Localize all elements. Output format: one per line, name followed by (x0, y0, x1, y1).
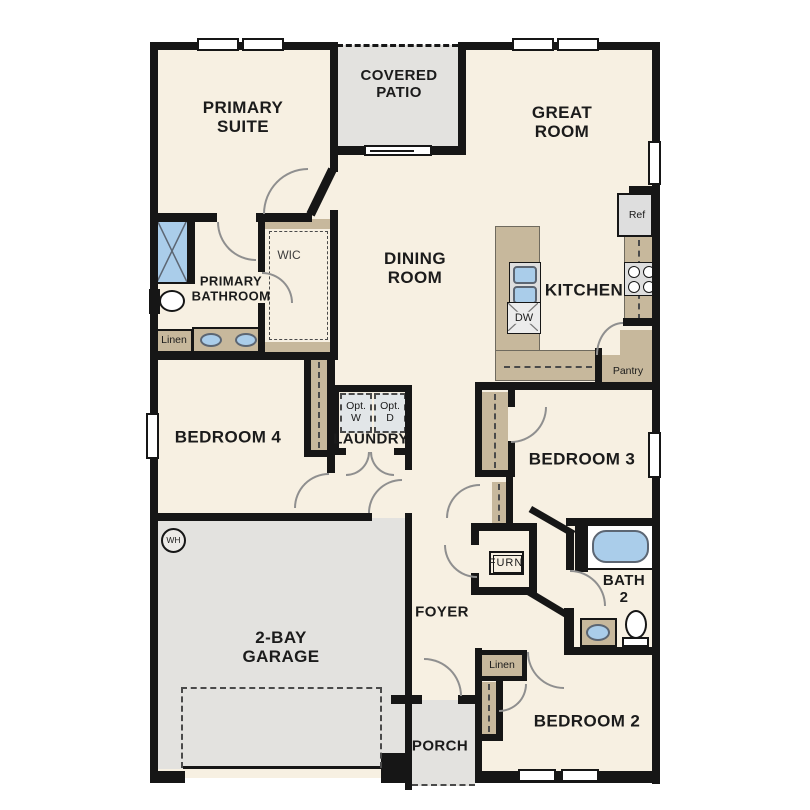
garage-apron-dashed (181, 687, 382, 768)
bedroom4-closet-rod (318, 362, 320, 448)
wall-bath2-left-a (566, 530, 574, 570)
wall-bedroom3-closet-right-a (508, 385, 515, 407)
bath2-tub (592, 530, 649, 563)
window-bedroom2-1 (518, 769, 556, 782)
wall-furn-right (529, 523, 537, 595)
wall-bedroom2-closet-cap (482, 734, 503, 741)
burner-1 (628, 266, 640, 278)
wall-ref-stub (629, 186, 660, 194)
label-opt-d: Opt. D (377, 401, 403, 425)
label-covered-patio: COVERED PATIO (352, 68, 447, 102)
wall-bath2-bottom (566, 647, 660, 655)
window-greatroom-right (648, 141, 661, 185)
bath2-sink (586, 624, 610, 641)
porch-open-edge (412, 784, 475, 786)
vanity-sink-left (200, 333, 222, 347)
wall-wic-right (330, 210, 338, 360)
wall-bath-wic-a (258, 222, 265, 272)
window-bedroom2-2 (561, 769, 599, 782)
label-bedroom3: BEDROOM 3 (529, 449, 636, 468)
window-greatroom-1 (512, 38, 554, 51)
wall-bedroom4-closet-cap (304, 450, 335, 457)
bath2-toilet-tank (622, 637, 649, 647)
bath2-toilet-bowl (625, 610, 647, 639)
label-great-room: GREAT ROOM (517, 103, 607, 141)
label-laundry: LAUNDRY (333, 432, 409, 449)
wall-primary-bottom-b (256, 213, 312, 222)
bedroom2-closet-rod (488, 684, 490, 732)
label-dining-room: DINING ROOM (368, 249, 463, 287)
label-wic: WIC (277, 249, 300, 263)
label-primary-suite: PRIMARY SUITE (191, 98, 296, 136)
label-bedroom4: BEDROOM 4 (175, 427, 282, 446)
wall-bedroom3-closet-left (475, 385, 482, 477)
label-wh: WH (166, 536, 180, 546)
label-ref: Ref (629, 210, 645, 222)
wall-bath2-tub-left (575, 518, 588, 572)
wall-bedroom4-closet-left (304, 358, 311, 455)
wall-bedroom3-top (475, 382, 660, 390)
label-primary-bathroom: PRIMARY BATHROOM (172, 274, 290, 303)
wall-bath-wic-b (258, 303, 265, 355)
window-bedroom3-right (648, 432, 661, 478)
wall-patio-bottom-a (330, 146, 368, 155)
label-foyer: FOYER (415, 605, 469, 622)
vanity-sink-right (235, 333, 257, 347)
hall-closet-rod (498, 484, 500, 521)
wall-laundry-right (405, 385, 412, 470)
window-primary-2 (242, 38, 284, 51)
label-kitchen: KITCHEN (545, 280, 623, 299)
wall-bedroom2-left (475, 648, 482, 778)
wall-furn-left-a (471, 523, 479, 545)
wall-furn-top (471, 523, 537, 531)
label-pantry: Pantry (613, 366, 643, 378)
kitchen-sink-basin-top (513, 266, 537, 284)
wall-front-b (458, 695, 482, 704)
label-linen-hall: Linen (489, 660, 515, 672)
window-greatroom-2 (557, 38, 599, 51)
wall-hall-closet-right (506, 477, 513, 527)
label-garage: 2-BAY GARAGE (234, 628, 329, 666)
label-opt-w: Opt. W (343, 401, 369, 425)
wall-laundry-bottom-a (332, 448, 346, 455)
wall-patio-right (458, 42, 466, 154)
label-furn: FURN (489, 557, 524, 569)
wall-bedroom3-closet-bottom (475, 470, 515, 477)
wall-pantry-top (623, 318, 660, 326)
wall-laundry-bottom-b (394, 448, 412, 455)
window-bedroom4-left (146, 413, 159, 459)
wall-laundry-top (332, 385, 412, 392)
label-bath2: BATH 2 (601, 573, 647, 607)
label-bedroom2: BEDROOM 2 (534, 711, 641, 730)
patio-open-edge (337, 44, 458, 47)
wall-front-a (391, 695, 422, 704)
burner-3 (628, 281, 640, 293)
floor-plan: PRIMARY SUITE COVERED PATIO GREAT ROOM P… (0, 0, 810, 810)
window-primary-1 (197, 38, 239, 51)
wall-primary-bottom-a (150, 213, 217, 222)
wall-patio-bottom-b (428, 146, 466, 155)
patio-sliding-door-panel (370, 150, 414, 152)
wall-garage-bottom-left (150, 771, 185, 783)
bedroom3-closet-rod (494, 394, 496, 468)
label-porch: PORCH (412, 739, 468, 756)
label-linen-primary: Linen (161, 335, 187, 347)
label-dw: DW (514, 312, 534, 324)
wall-garage-top (150, 513, 372, 521)
kitchen-counter-dashed (504, 366, 592, 368)
wall-garage-corner-block (381, 753, 412, 783)
